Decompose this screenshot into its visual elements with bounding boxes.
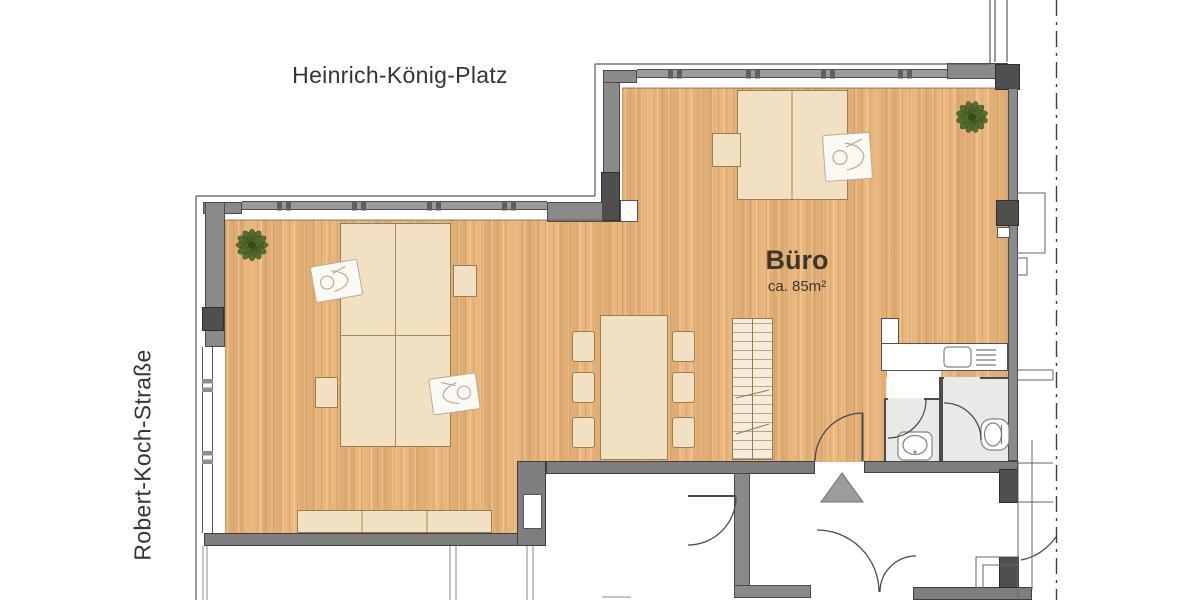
chair [572, 372, 595, 403]
bathroom-niche [887, 371, 941, 398]
side-table [453, 265, 477, 297]
street-label-left: Robert-Koch-Straße [130, 349, 157, 560]
street-label-top: Heinrich-König-Platz [230, 62, 570, 89]
column [996, 200, 1019, 226]
column [601, 172, 620, 221]
entrance-arrow-icon [821, 473, 863, 502]
meeting-table [600, 315, 668, 460]
window-reveal [620, 200, 638, 222]
wall-upper-left-top [603, 70, 637, 83]
bath-wall [980, 377, 1008, 379]
chair [672, 417, 695, 448]
chair [572, 331, 595, 362]
kitchen-tall-unit [881, 318, 899, 344]
wall-niche [523, 494, 542, 529]
wall-stairwell-v [734, 473, 750, 598]
window-left [202, 347, 213, 533]
wall-below-right [913, 587, 1032, 600]
wall-niche [997, 227, 1010, 238]
window-band-top [637, 69, 947, 78]
column [999, 469, 1018, 503]
chair [672, 372, 695, 403]
bath-wall [884, 398, 886, 461]
sideboard [297, 510, 492, 533]
column [995, 64, 1020, 90]
window-band-lower [242, 201, 547, 210]
chair [572, 417, 595, 448]
column [202, 307, 224, 331]
desk-block-upper [737, 90, 848, 200]
floor-plan: Heinrich-König-Platz Robert-Koch-Straße … [0, 0, 1200, 600]
wall-bottom-left [204, 533, 546, 546]
wall-lowband-right [547, 202, 603, 222]
wall-bottom-mid [546, 461, 815, 474]
room-label: Büro [700, 245, 894, 276]
shelf-unit [732, 318, 773, 460]
bath-wall-divider [939, 377, 943, 461]
room-area-label: ca. 85m² [700, 278, 894, 295]
side-table [712, 133, 741, 167]
wall-stairwell-h [734, 585, 811, 598]
side-table [315, 377, 338, 408]
column [999, 557, 1019, 588]
kitchen-counter [881, 343, 1008, 371]
wall-right [1008, 88, 1018, 461]
wall-bottom-right [864, 461, 1018, 473]
desk-block-lower [340, 223, 451, 447]
chair [672, 331, 695, 362]
